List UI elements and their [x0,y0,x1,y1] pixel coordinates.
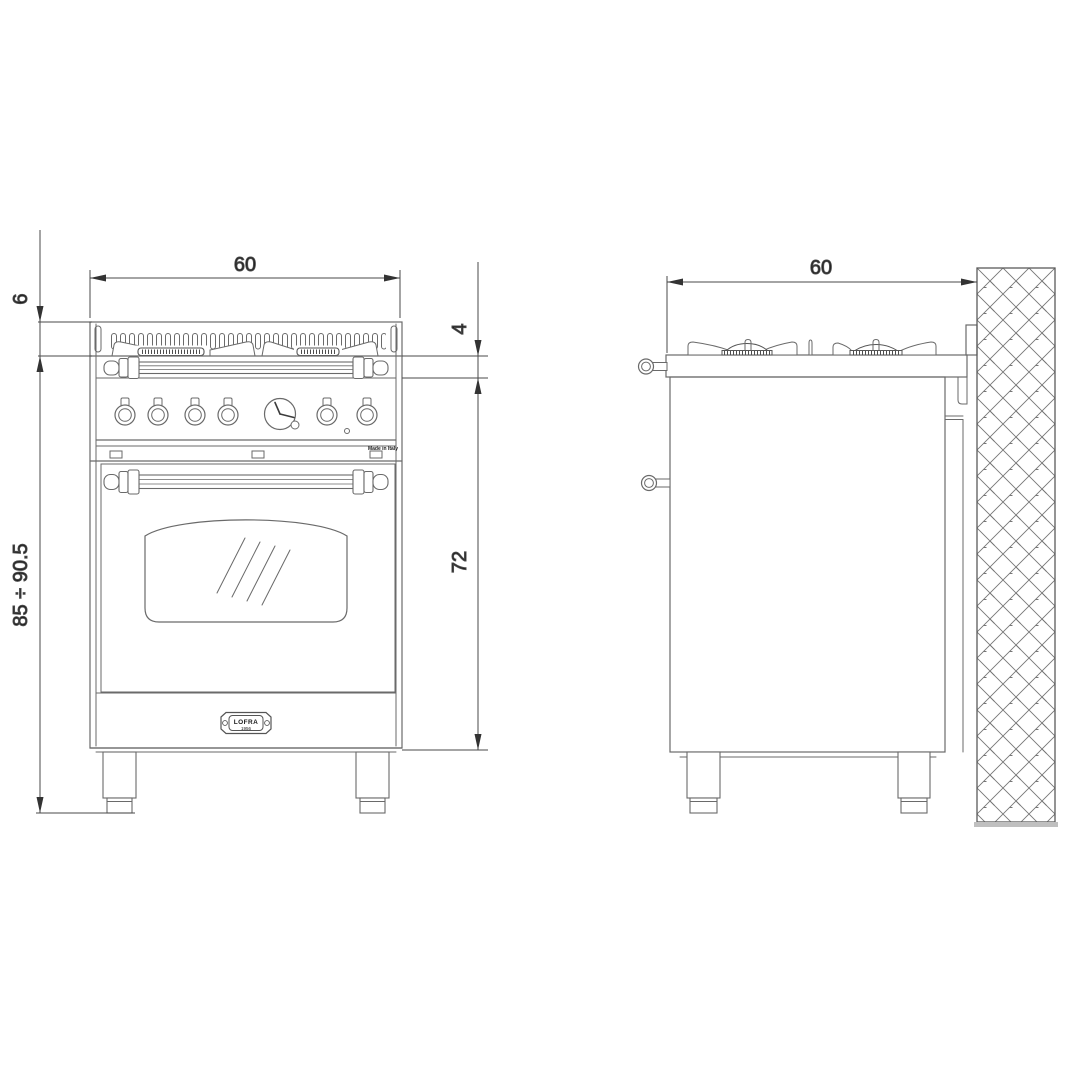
burner-cap-left [135,346,207,357]
dimension-annotations: 60 6 85 ÷ 90.5 4 72 [10,230,977,813]
front-view: Made in Italy [90,322,402,813]
foot [901,798,927,813]
backguard-upstand [966,325,977,355]
side-body-outline [666,325,977,757]
badge-year-text: 1956 [241,726,252,731]
hinge-slots [110,451,382,458]
leg [356,752,389,798]
dimension-label-front-width: 60 [234,254,256,276]
control-panel: Made in Italy [115,398,398,452]
control-knob [218,398,238,425]
wall-base-line [974,822,1058,827]
oven-window [145,520,347,622]
clock-timer [265,399,300,430]
window-reflection [217,538,290,605]
front-dimension-width: 60 [90,254,400,318]
front-dimension-worktop-edge: 4 [402,262,488,750]
leg [898,752,930,798]
cooktop-grate [95,326,397,357]
technical-drawing-canvas: Made in Italy [0,0,1080,1080]
side-view [639,268,1059,827]
made-in-italy-label: Made in Italy [368,446,398,452]
range-body-outline [90,322,402,752]
front-dimension-body-height: 72 [402,551,488,750]
side-dimension-depth: 60 [667,257,977,353]
towel-rail [104,357,388,379]
dimensional-drawing-svg: Made in Italy [0,0,1080,1080]
foot [107,798,132,813]
side-rail-knobs [639,359,671,491]
front-dimension-backguard-height: 6 [10,230,92,813]
door-handle [104,470,388,494]
control-knob [357,398,377,425]
badge-brand-text: LOFRA [234,719,258,726]
oven-door [104,470,388,622]
control-knob [317,398,337,425]
dimension-label-body-height: 72 [449,551,471,573]
burner-cap-right [294,346,342,357]
dimension-label-depth: 60 [810,257,832,279]
foot [690,798,717,813]
control-knob [115,398,135,425]
wall-section [974,268,1058,827]
dimension-label-backguard-height: 6 [10,293,32,304]
front-legs [103,752,389,813]
side-legs [687,752,930,813]
leg [103,752,136,798]
leg [687,752,720,798]
dimension-label-overall-height: 85 ÷ 90.5 [10,543,32,626]
side-burners [688,340,936,356]
control-knob [148,398,168,425]
dimension-label-worktop-edge: 4 [449,323,471,334]
brand-badge: LOFRA 1956 [221,713,271,734]
control-knob [185,398,205,425]
indicator-light [345,429,350,434]
foot [360,798,385,813]
